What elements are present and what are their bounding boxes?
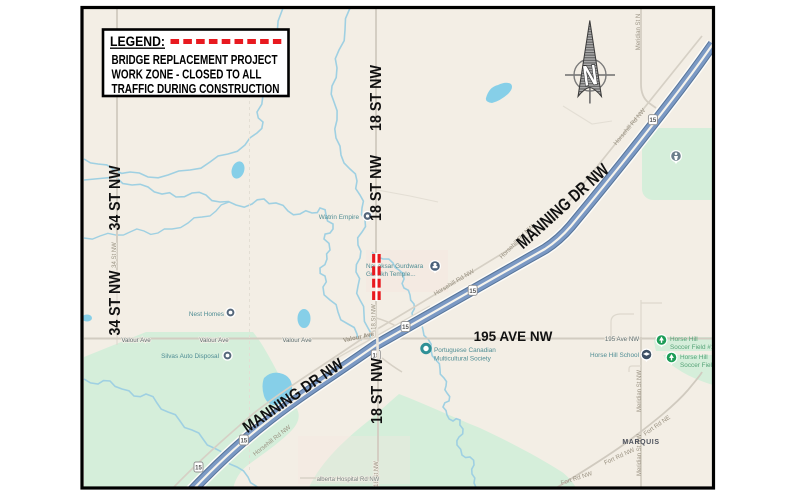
svg-text:Silvas Auto Disposal: Silvas Auto Disposal	[161, 353, 219, 360]
svg-text:195 AVE NW: 195 AVE NW	[474, 329, 553, 344]
svg-text:LEGEND:: LEGEND:	[110, 34, 165, 49]
svg-text:Horse Hill: Horse Hill	[680, 354, 708, 361]
svg-text:15: 15	[469, 289, 476, 295]
svg-text:34 St NW: 34 St NW	[112, 242, 118, 268]
svg-text:Nest Homes: Nest Homes	[189, 311, 224, 318]
svg-text:34 ST NW: 34 ST NW	[107, 165, 124, 231]
svg-text:TRAFFIC DURING CONSTRUCTION: TRAFFIC DURING CONSTRUCTION	[112, 82, 280, 96]
svg-text:Valour Ave: Valour Ave	[282, 337, 312, 344]
svg-text:Valour Ave: Valour Ave	[121, 337, 151, 344]
svg-text:18 ST NW: 18 ST NW	[369, 357, 386, 424]
svg-text:Horse Hill School: Horse Hill School	[590, 352, 639, 359]
svg-text:18 ST NW: 18 ST NW	[368, 64, 385, 131]
svg-text:alberta Hospital Rd NW: alberta Hospital Rd NW	[317, 477, 380, 483]
svg-text:15: 15	[195, 466, 202, 472]
svg-text:Valour Ave: Valour Ave	[199, 337, 229, 344]
svg-text:Portuguese Canadian: Portuguese Canadian	[434, 347, 496, 354]
svg-text:34 ST NW: 34 ST NW	[107, 270, 124, 336]
svg-text:18 St NW: 18 St NW	[372, 304, 378, 330]
svg-text:Horse Hill: Horse Hill	[670, 336, 698, 343]
svg-text:15: 15	[240, 439, 247, 445]
svg-text:15: 15	[650, 118, 657, 124]
svg-text:MARQUIS: MARQUIS	[622, 439, 659, 446]
svg-text:Soccer Field: Soccer Field	[680, 362, 716, 369]
svg-text:Meridian St NW: Meridian St NW	[637, 370, 643, 412]
svg-text:Meridian St N: Meridian St N	[636, 14, 642, 50]
svg-text:18 ST NW: 18 ST NW	[368, 154, 385, 221]
svg-text:Watrin Empire: Watrin Empire	[319, 214, 360, 221]
svg-text:15: 15	[402, 325, 409, 331]
svg-text:Multicultural Society: Multicultural Society	[434, 356, 492, 363]
svg-text:WORK ZONE - CLOSED TO ALL: WORK ZONE - CLOSED TO ALL	[112, 68, 262, 82]
svg-text:195 Ave NW: 195 Ave NW	[605, 336, 639, 343]
svg-text:Soccer Field #1: Soccer Field #1	[670, 344, 715, 351]
svg-text:BRIDGE REPLACEMENT PROJECT: BRIDGE REPLACEMENT PROJECT	[112, 53, 278, 67]
